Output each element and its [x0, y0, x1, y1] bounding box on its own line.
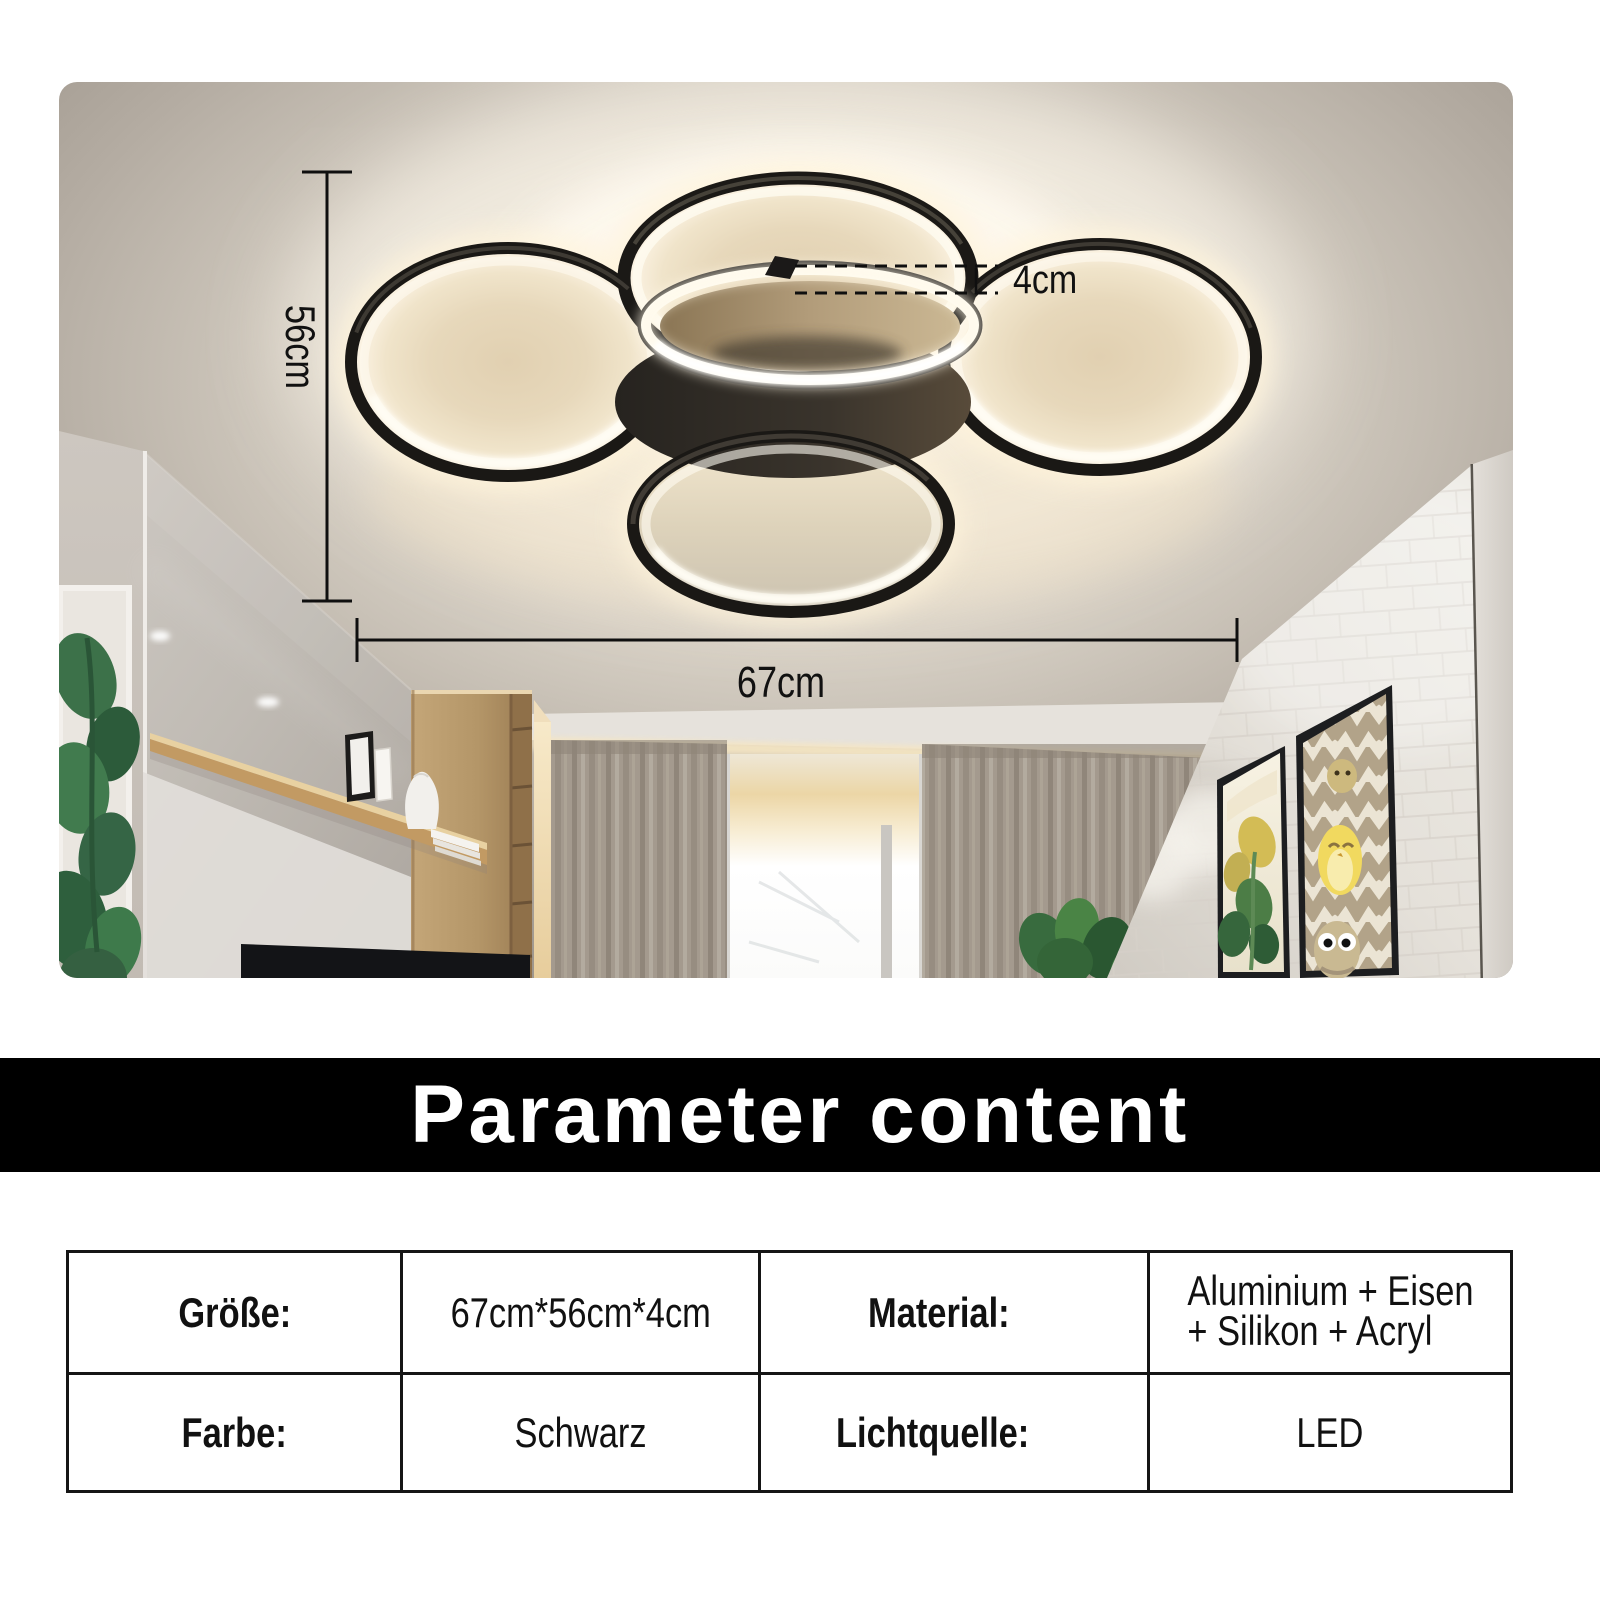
svg-text:56cm: 56cm: [276, 305, 323, 389]
svg-text:67cm: 67cm: [737, 658, 825, 707]
svg-text:4cm: 4cm: [1013, 256, 1077, 301]
